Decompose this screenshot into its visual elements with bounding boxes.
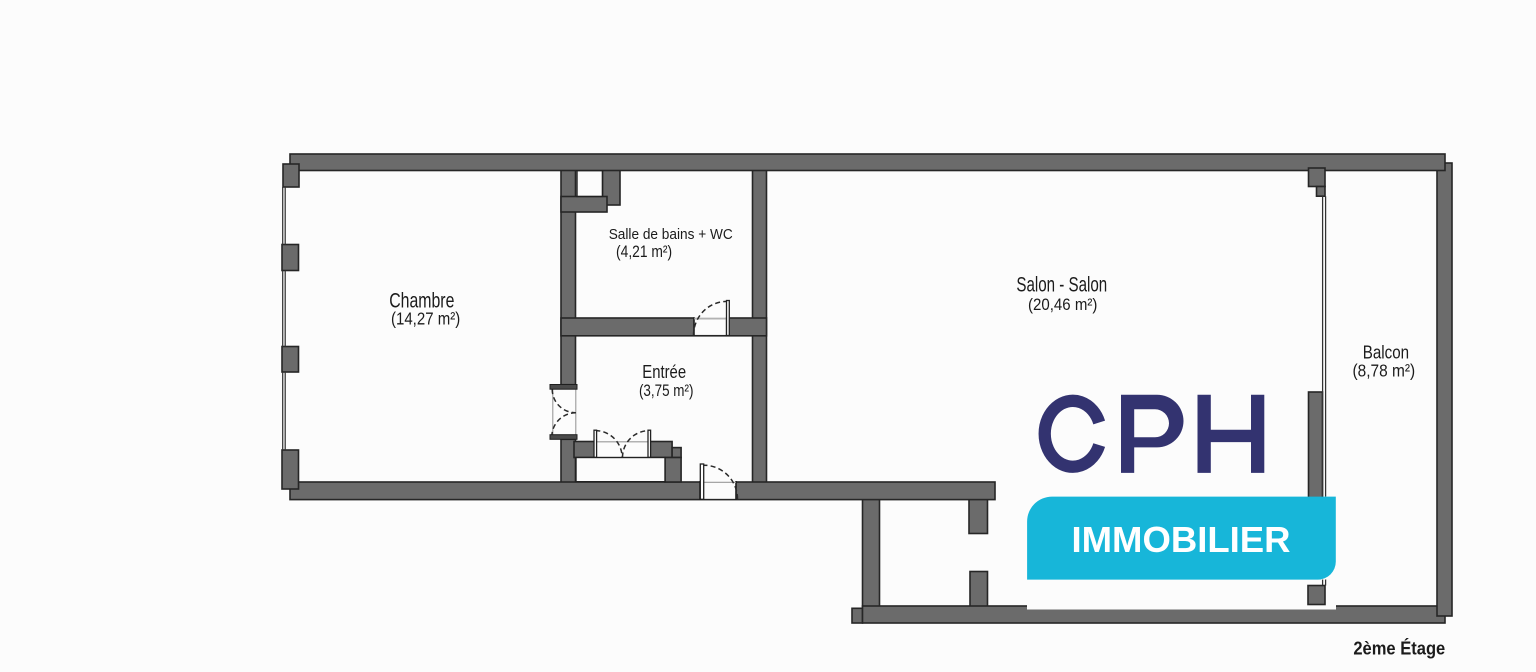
svg-text:Entrée: Entrée: [642, 362, 686, 382]
svg-text:2ème Étage: 2ème Étage: [1353, 638, 1445, 659]
svg-text:Salle de bains + WC: Salle de bains + WC: [609, 226, 733, 243]
svg-text:(8,78 m²): (8,78 m²): [1353, 361, 1416, 381]
svg-text:Balcon: Balcon: [1363, 342, 1409, 362]
svg-text:IMMOBILIER: IMMOBILIER: [1072, 519, 1291, 560]
svg-text:(4,21 m²): (4,21 m²): [616, 242, 672, 261]
svg-text:(3,75 m²): (3,75 m²): [639, 381, 694, 400]
svg-text:(14,27 m²): (14,27 m²): [391, 309, 460, 329]
svg-text:Salon - Salon: Salon - Salon: [1016, 273, 1107, 296]
svg-text:(20,46 m²): (20,46 m²): [1028, 295, 1097, 314]
